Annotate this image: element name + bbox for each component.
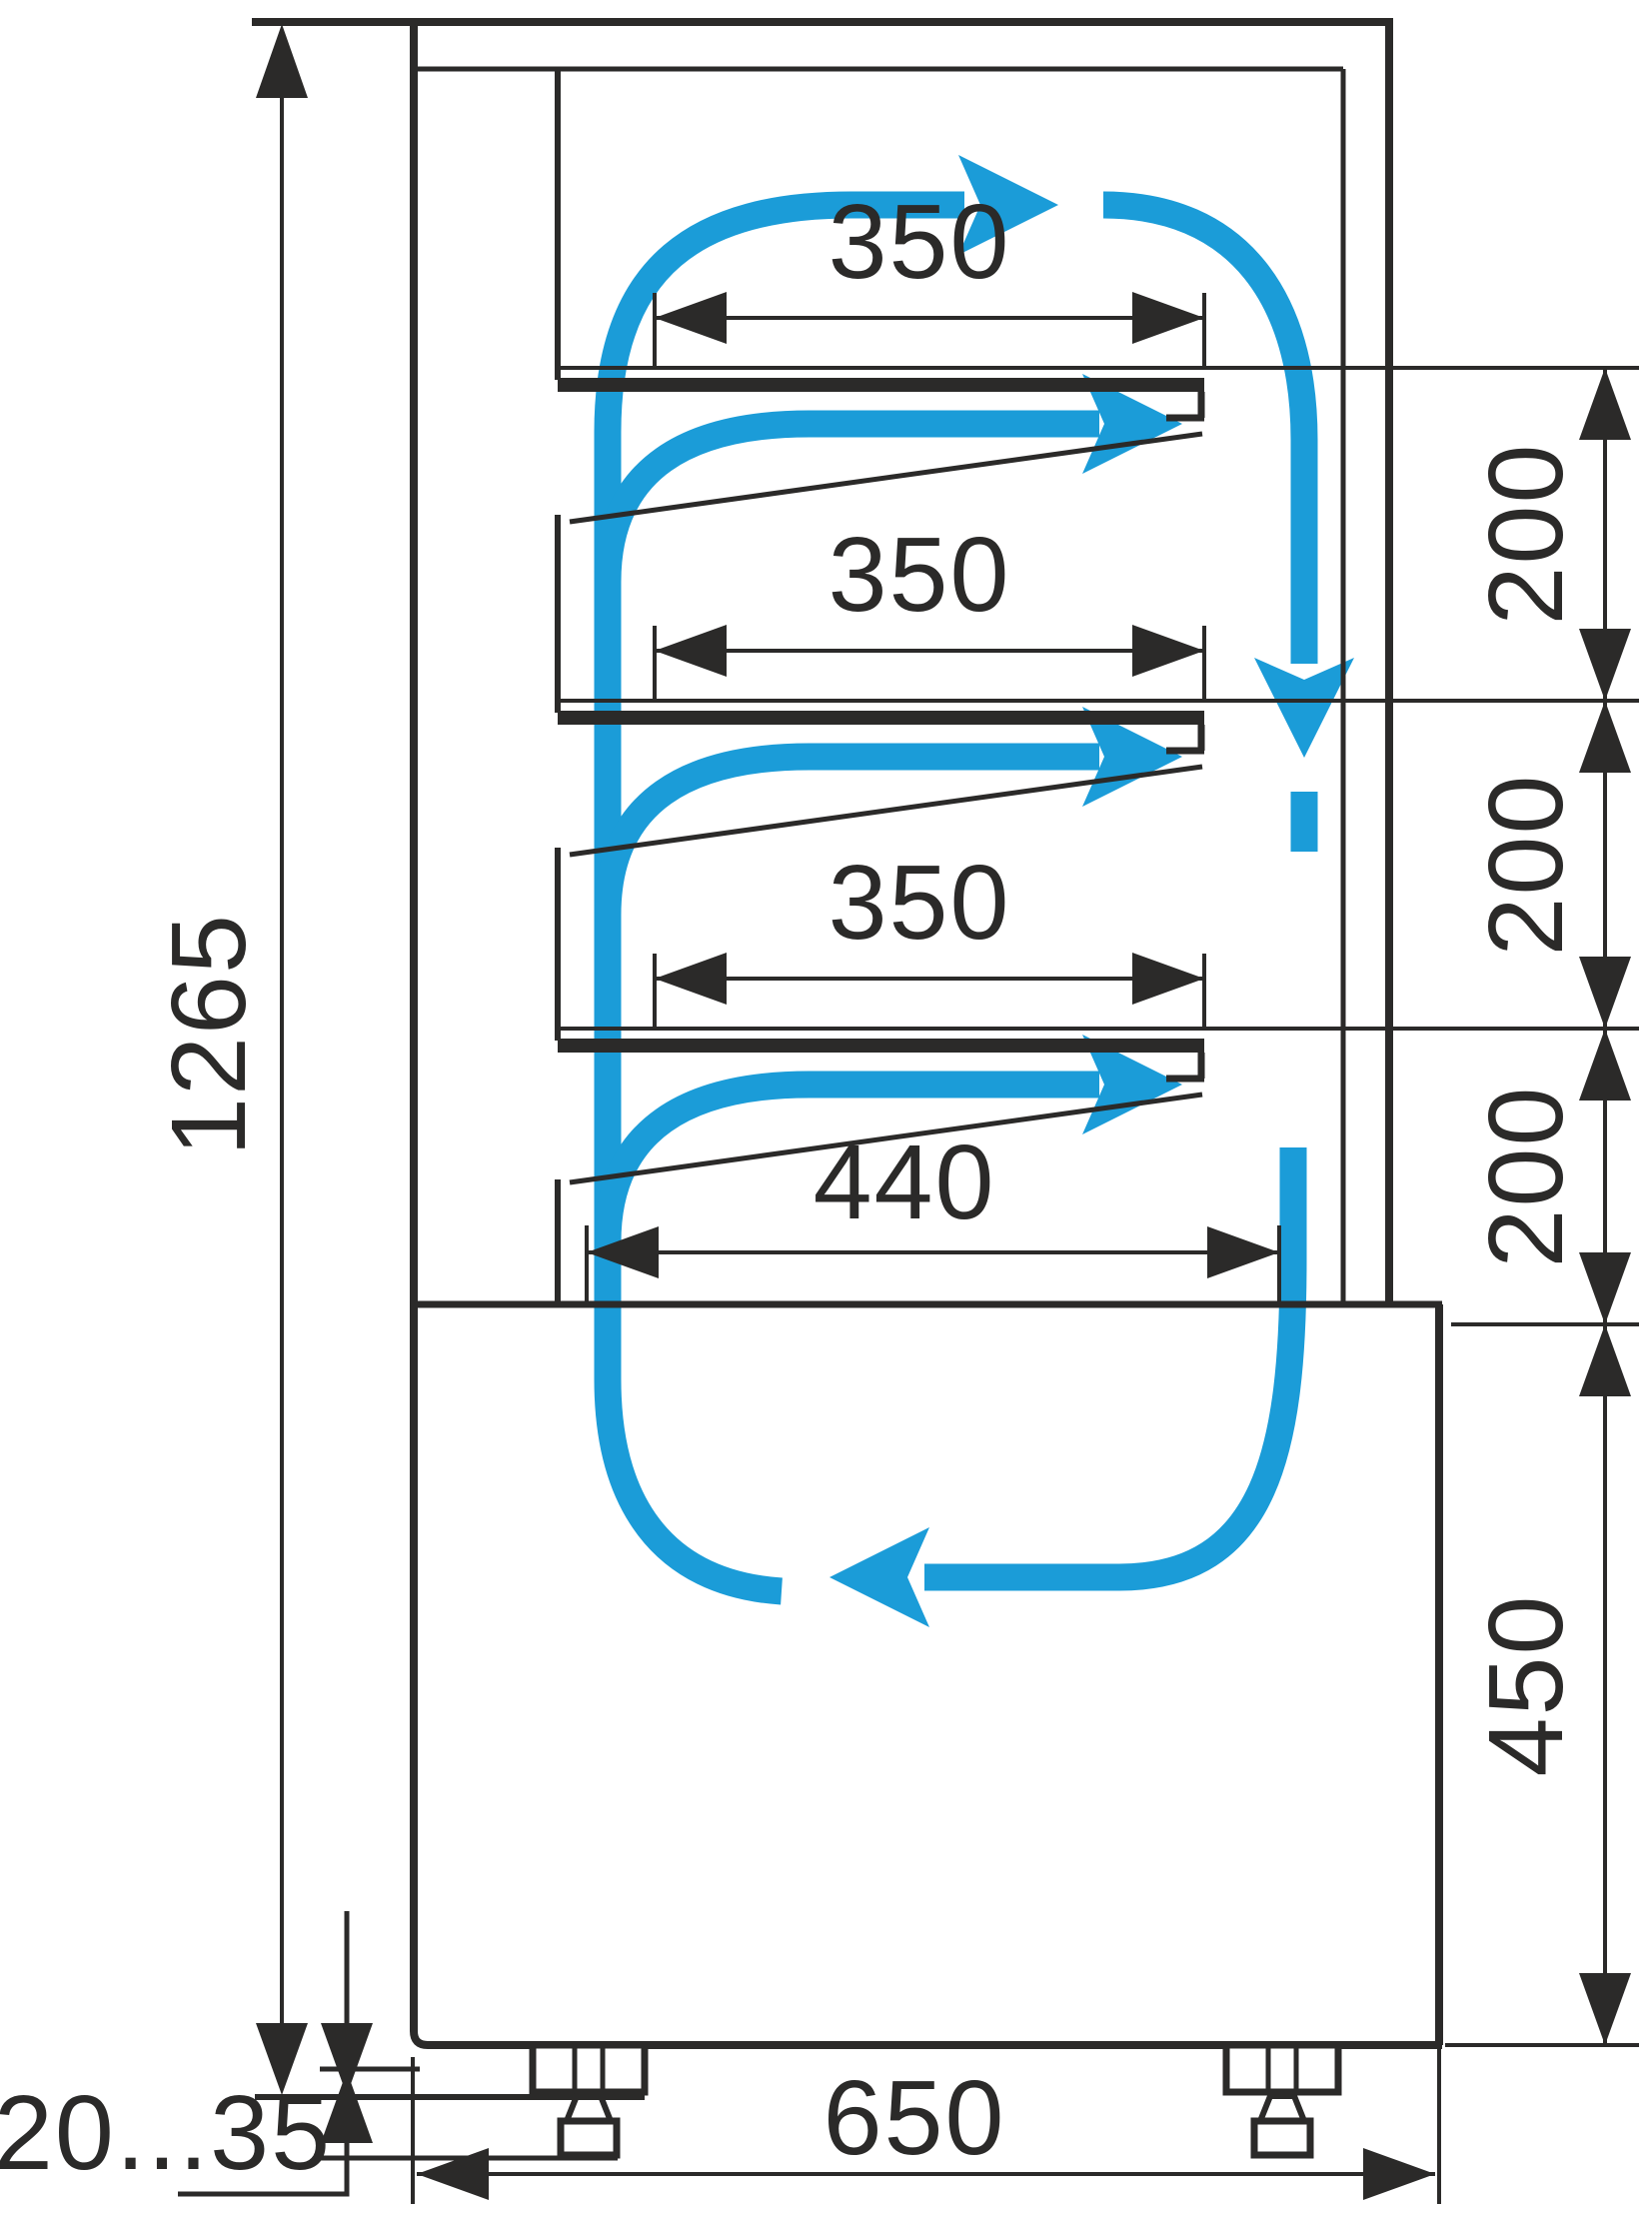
dim-350-1-arrow-left-icon: [655, 292, 727, 344]
technical-drawing: 350 350 350 440 200 200 200 450 1265 650…: [0, 0, 1652, 2214]
dim-440-arrow-right-icon: [1207, 1226, 1279, 1278]
dim-200-1-arrow-bottom-icon: [1579, 629, 1631, 701]
label-deck-depth: 440: [814, 1123, 996, 1241]
dim-650-arrow-right-icon: [1363, 2148, 1435, 2200]
dim-200-1-arrow-top-icon: [1579, 368, 1631, 440]
dim-350-2-arrow-right-icon: [1132, 625, 1204, 677]
label-gap1: 200: [1467, 443, 1585, 626]
label-shelf2-depth: 350: [828, 516, 1011, 634]
shelf3: [558, 1039, 1204, 1053]
right-foot: [1226, 2045, 1338, 2155]
label-gap2: 200: [1467, 774, 1585, 957]
dimension-labels: 350 350 350 440 200 200 200 450 1265 650…: [0, 183, 1585, 2192]
label-shelf3-depth: 350: [828, 844, 1011, 962]
shelf2: [558, 711, 1204, 725]
shelf1-front-bracket: [1166, 392, 1204, 418]
drawing-canvas: 350 350 350 440 200 200 200 450 1265 650…: [0, 0, 1652, 2214]
left-foot-plate: [533, 2045, 645, 2092]
dim-200-2-arrow-bottom-icon: [1579, 957, 1631, 1029]
right-foot-pad: [1254, 2121, 1310, 2155]
label-shelf1-depth: 350: [828, 183, 1011, 301]
right-foot-nut: [1260, 2096, 1304, 2121]
dim-450-arrow-bottom-icon: [1579, 1973, 1631, 2045]
shelf3-front-bracket: [1166, 1053, 1204, 1079]
left-foot-pad: [561, 2121, 617, 2155]
airflow-left-arrow-icon: [829, 1527, 929, 1627]
label-overall-depth: 650: [824, 2059, 1006, 2177]
label-base-height: 450: [1467, 1594, 1585, 1777]
dim-350-1-arrow-right-icon: [1132, 292, 1204, 344]
dim-200-3-arrow-bottom-icon: [1579, 1252, 1631, 1324]
airflow-down-arrow-icon: [1254, 658, 1354, 758]
shelf2-front-bracket: [1166, 725, 1204, 751]
dim-350-3-arrow-left-icon: [655, 953, 727, 1005]
label-gap3: 200: [1467, 1086, 1585, 1268]
shelf1: [558, 378, 1204, 392]
label-feet-range: 20...35: [0, 2074, 332, 2192]
dim-450-arrow-top-icon: [1579, 1324, 1631, 1396]
label-overall-height: 1265: [150, 913, 268, 1156]
dim-200-2-arrow-top-icon: [1579, 701, 1631, 773]
dim-200-3-arrow-top-icon: [1579, 1029, 1631, 1101]
dim-350-2-arrow-left-icon: [655, 625, 727, 677]
dimensions: [178, 24, 1639, 2204]
right-foot-plate: [1226, 2045, 1338, 2092]
dim-350-3-arrow-right-icon: [1132, 953, 1204, 1005]
dim-1265-arrow-top-icon: [256, 24, 308, 98]
